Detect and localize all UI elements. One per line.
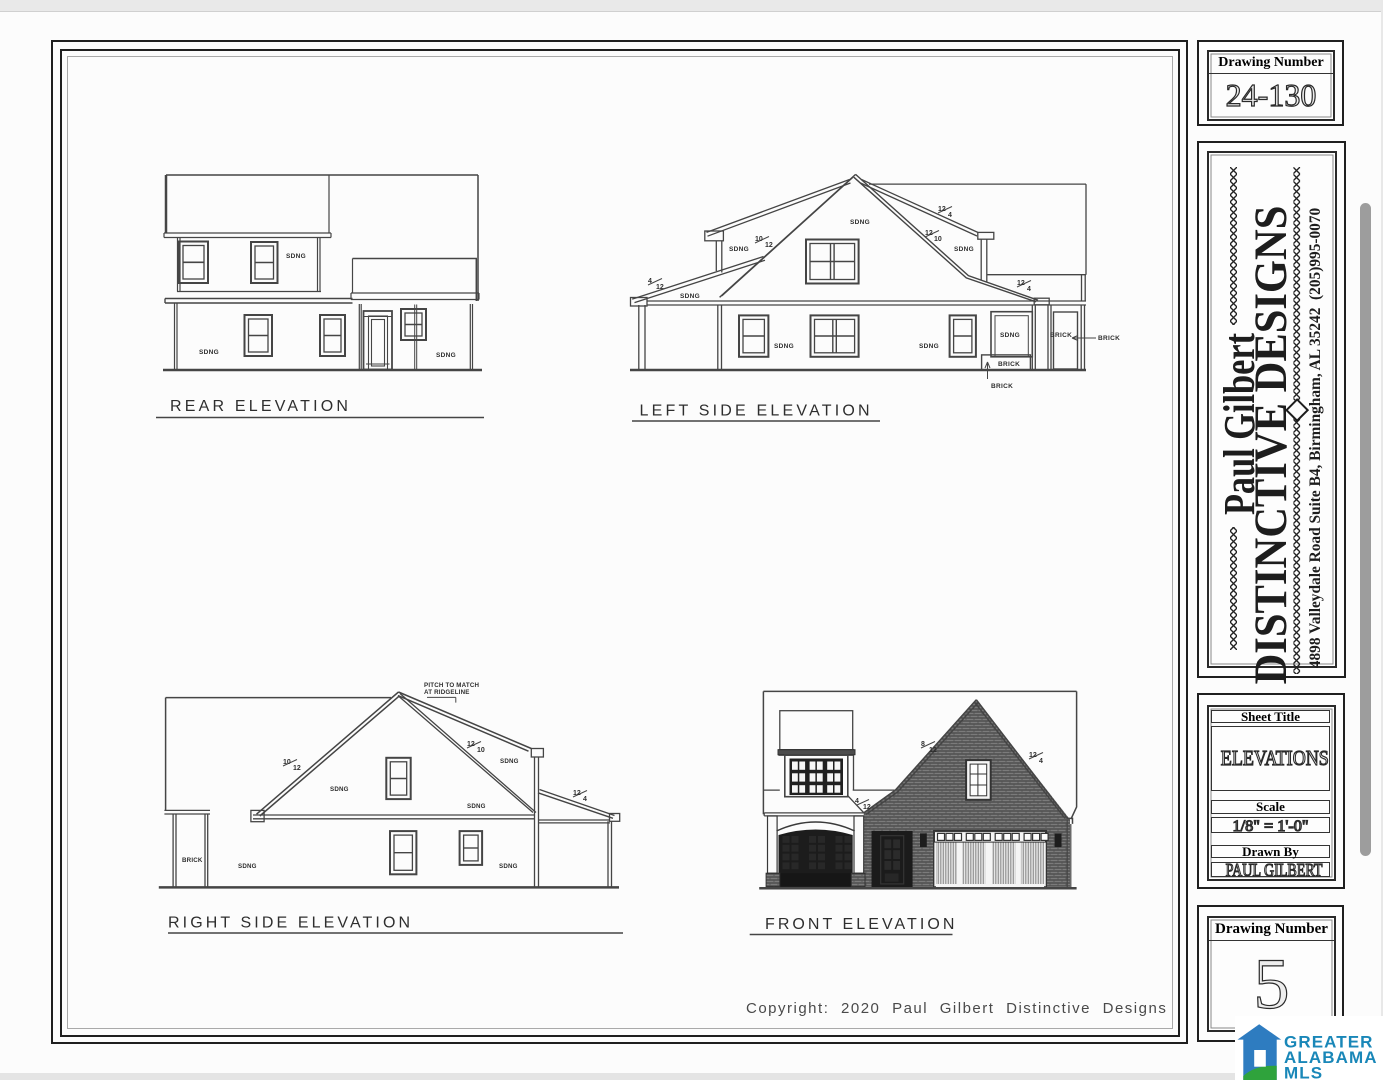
svg-text:4: 4 — [948, 212, 952, 219]
svg-text:BRICK: BRICK — [998, 361, 1020, 368]
svg-text:PITCH TO MATCH: PITCH TO MATCH — [424, 682, 479, 689]
svg-text:4: 4 — [855, 798, 859, 805]
svg-text:SDNG: SDNG — [436, 352, 456, 359]
svg-text:RIGHT SIDE ELEVATION: RIGHT SIDE ELEVATION — [168, 915, 413, 932]
svg-text:SDNG: SDNG — [774, 343, 794, 350]
svg-text:SDNG: SDNG — [500, 758, 519, 765]
svg-text:4: 4 — [1027, 286, 1031, 293]
svg-text:10: 10 — [934, 236, 942, 243]
svg-text:SDNG: SDNG — [467, 803, 486, 810]
svg-text:FRONT ELEVATION: FRONT ELEVATION — [765, 916, 957, 933]
svg-text:REAR ELEVATION: REAR ELEVATION — [170, 398, 351, 415]
svg-text:SDNG: SDNG — [919, 343, 939, 350]
svg-text:SDNG: SDNG — [330, 786, 349, 793]
svg-text:SDNG: SDNG — [499, 863, 518, 870]
svg-text:BRICK: BRICK — [1050, 332, 1072, 339]
svg-text:4: 4 — [648, 278, 652, 285]
svg-text:4: 4 — [583, 796, 587, 803]
svg-text:MLS: MLS — [1284, 1064, 1323, 1080]
svg-text:12: 12 — [863, 804, 871, 811]
svg-text:BRICK: BRICK — [1098, 335, 1120, 342]
svg-text:10: 10 — [477, 747, 485, 754]
svg-text:AT RIDGELINE: AT RIDGELINE — [424, 689, 470, 696]
svg-text:12: 12 — [467, 741, 475, 748]
svg-text:12: 12 — [293, 765, 301, 772]
svg-text:SDNG: SDNG — [286, 253, 306, 260]
svg-text:12: 12 — [938, 206, 946, 213]
svg-text:12: 12 — [656, 284, 664, 291]
svg-text:BRICK: BRICK — [991, 383, 1013, 390]
svg-text:SDNG: SDNG — [850, 219, 870, 226]
svg-text:8: 8 — [921, 741, 925, 748]
svg-text:12: 12 — [1029, 752, 1037, 759]
svg-text:SDNG: SDNG — [954, 246, 974, 253]
svg-text:SDNG: SDNG — [729, 246, 749, 253]
svg-text:12: 12 — [929, 747, 937, 754]
svg-text:4: 4 — [1039, 758, 1043, 765]
svg-text:LEFT SIDE ELEVATION: LEFT SIDE ELEVATION — [640, 403, 873, 420]
svg-text:SDNG: SDNG — [199, 349, 219, 356]
svg-text:12: 12 — [573, 790, 581, 797]
svg-text:BRICK: BRICK — [182, 857, 203, 864]
svg-text:SDNG: SDNG — [238, 863, 257, 870]
svg-text:SDNG: SDNG — [680, 293, 700, 300]
svg-text:10: 10 — [755, 236, 763, 243]
svg-text:10: 10 — [283, 759, 291, 766]
svg-text:12: 12 — [1017, 280, 1025, 287]
svg-text:12: 12 — [765, 242, 773, 249]
svg-text:12: 12 — [925, 230, 933, 237]
svg-text:SDNG: SDNG — [1000, 332, 1020, 339]
